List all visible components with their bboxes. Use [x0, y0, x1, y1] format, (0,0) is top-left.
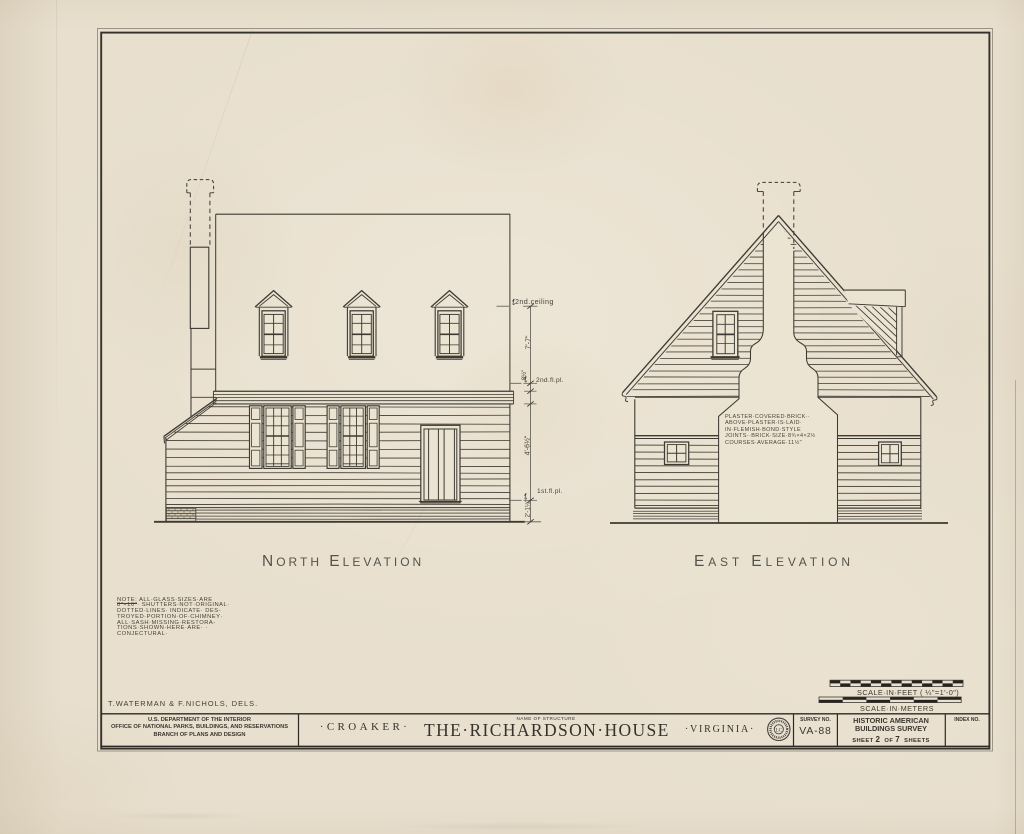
svg-text:LC: LC: [775, 727, 782, 733]
